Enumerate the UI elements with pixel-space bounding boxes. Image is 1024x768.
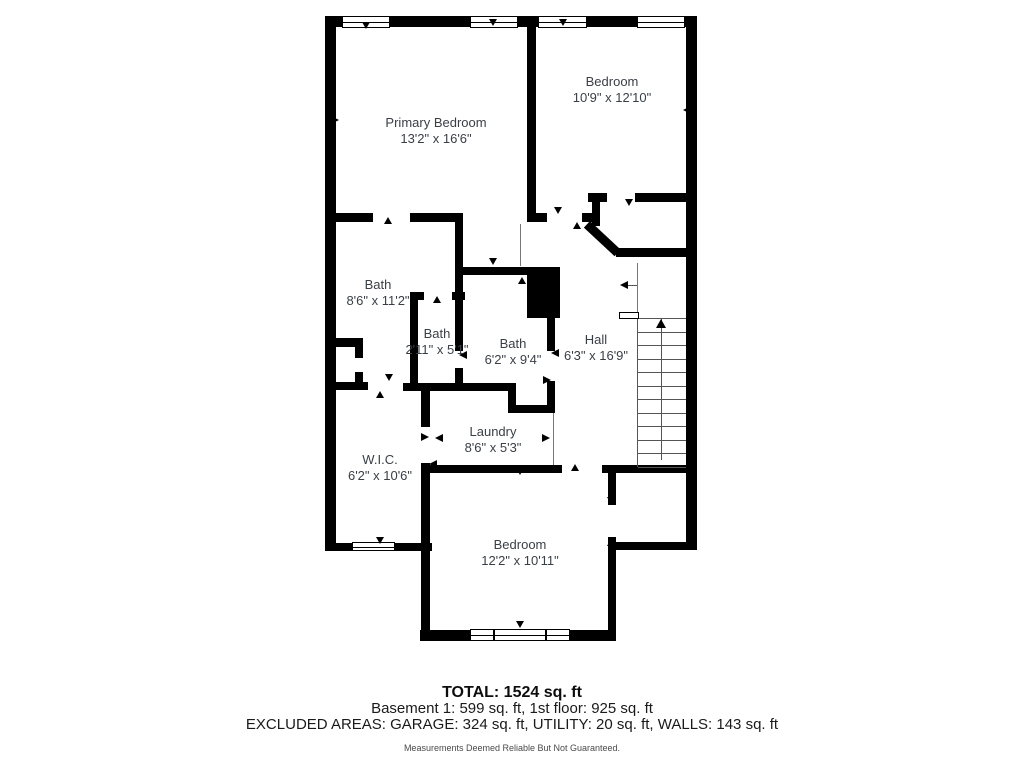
opening-line — [553, 413, 554, 465]
stair-landing-line — [637, 263, 638, 318]
door-swing-marker — [518, 277, 526, 284]
door-swing-marker — [433, 296, 441, 303]
room-name: W.I.C. — [348, 452, 412, 468]
door-swing-marker — [435, 434, 443, 442]
door-swing-marker — [607, 539, 615, 546]
stair-tread — [638, 359, 686, 360]
wall-segment — [533, 213, 547, 222]
door-swing-marker — [489, 19, 497, 26]
door-swing-marker — [385, 374, 393, 381]
room-label-bedroom-top: Bedroom10'9" x 12'10" — [573, 74, 652, 106]
stair-tread — [638, 386, 686, 387]
room-label-bedroom-bottom: Bedroom12'2" x 10'11" — [481, 537, 559, 569]
room-dimensions: 10'9" x 12'10" — [573, 90, 652, 106]
room-label-laundry: Laundry8'6" x 5'3" — [465, 424, 522, 456]
wall-segment — [403, 383, 516, 391]
door-swing-marker — [683, 106, 691, 114]
door-swing-marker — [421, 433, 429, 441]
door-swing-marker — [362, 22, 370, 29]
stair-tread — [638, 345, 686, 346]
stair-tread — [638, 332, 686, 333]
room-dimensions: 2'11" x 5'1" — [405, 342, 468, 358]
wall-segment — [587, 16, 637, 27]
door-swing-marker — [376, 537, 384, 544]
room-name: Hall — [564, 332, 628, 348]
door-swing-marker — [551, 349, 559, 357]
door-swing-marker — [554, 207, 562, 214]
door-swing-marker — [607, 497, 615, 504]
opening-line — [520, 224, 521, 266]
door-swing-marker — [625, 199, 633, 206]
door-swing-marker — [429, 460, 437, 468]
room-label-hall: Hall6'3" x 16'9" — [564, 332, 628, 364]
room-dimensions: 6'2" x 10'6" — [348, 468, 412, 484]
wall-segment — [547, 318, 555, 351]
room-name: Bath — [346, 277, 409, 293]
wall-segment — [608, 542, 616, 641]
disclaimer-text: Measurements Deemed Reliable But Not Gua… — [0, 743, 1024, 753]
door-swing-marker — [376, 391, 384, 398]
room-dimensions: 6'3" x 16'9" — [564, 348, 628, 364]
stair-landing-ledge — [619, 312, 639, 319]
wall-segment — [421, 465, 562, 473]
window — [470, 629, 570, 641]
wall-segment — [608, 542, 697, 550]
wall-segment — [518, 16, 538, 27]
wall-segment — [325, 16, 336, 551]
door-swing-marker — [543, 376, 551, 384]
wall-segment — [527, 267, 560, 318]
door-swing-marker — [573, 222, 581, 229]
wall-segment — [547, 381, 555, 406]
door-swing-marker — [331, 116, 339, 124]
wall-segment — [421, 463, 430, 641]
room-dimensions: 8'6" x 11'2" — [346, 293, 409, 309]
floor-plan: Primary Bedroom13'2" x 16'6"Bedroom10'9"… — [0, 0, 1024, 768]
wall-segment — [463, 267, 527, 275]
area-summary: TOTAL: 1524 sq. ft Basement 1: 599 sq. f… — [0, 684, 1024, 753]
window — [352, 542, 395, 551]
floor-areas-text: Basement 1: 599 sq. ft, 1st floor: 925 s… — [0, 701, 1024, 717]
room-name: Primary Bedroom — [385, 115, 486, 131]
door-swing-marker — [571, 464, 579, 471]
total-area-text: TOTAL: 1524 sq. ft — [0, 684, 1024, 701]
door-swing-marker — [489, 258, 497, 265]
wall-segment — [331, 213, 373, 222]
stair-tread — [638, 399, 686, 400]
window-mullion — [493, 629, 495, 641]
room-dimensions: 8'6" x 5'3" — [465, 440, 522, 456]
room-dimensions: 13'2" x 16'6" — [385, 131, 486, 147]
wall-segment — [592, 196, 600, 226]
staircase — [637, 318, 638, 467]
room-label-bath-main: Bath8'6" x 11'2" — [346, 277, 409, 309]
stair-direction-arrow — [656, 319, 666, 328]
room-name: Bedroom — [573, 74, 652, 90]
room-label-bath-mid: Bath6'2" x 9'4" — [485, 336, 542, 368]
room-dimensions: 12'2" x 10'11" — [481, 553, 559, 569]
door-swing-marker — [542, 434, 550, 442]
door-swing-marker — [559, 19, 567, 26]
door-swing-marker — [384, 217, 392, 224]
room-label-bath-small: Bath2'11" x 5'1" — [405, 326, 468, 358]
room-label-wic: W.I.C.6'2" x 10'6" — [348, 452, 412, 484]
landing-direction-arrow — [620, 281, 628, 289]
wall-segment — [527, 27, 536, 222]
room-dimensions: 6'2" x 9'4" — [485, 352, 542, 368]
wall-segment — [635, 193, 690, 202]
room-name: Laundry — [465, 424, 522, 440]
window — [637, 16, 685, 28]
wall-segment-diagonal — [584, 221, 621, 256]
wall-segment — [570, 630, 616, 641]
room-name: Bath — [485, 336, 542, 352]
door-swing-marker — [516, 621, 524, 628]
room-label-primary-bedroom: Primary Bedroom13'2" x 16'6" — [385, 115, 486, 147]
excluded-areas-text: EXCLUDED AREAS: GARAGE: 324 sq. ft, UTIL… — [0, 717, 1024, 733]
wall-segment — [355, 338, 363, 358]
room-name: Bedroom — [481, 537, 559, 553]
wall-segment — [390, 16, 470, 27]
wall-segment — [325, 543, 352, 551]
window-mullion — [545, 629, 547, 641]
stair-tread — [638, 453, 686, 454]
stair-tread — [638, 372, 686, 373]
stair-tread — [638, 467, 686, 468]
wall-segment — [452, 292, 465, 300]
wall-segment — [355, 372, 363, 390]
wall-segment — [421, 383, 430, 427]
stair-tread — [638, 440, 686, 441]
door-swing-marker — [516, 468, 524, 475]
stair-tread — [638, 426, 686, 427]
wall-segment — [616, 248, 690, 257]
stair-tread — [638, 413, 686, 414]
stair-center-line — [661, 318, 662, 460]
room-name: Bath — [405, 326, 468, 342]
